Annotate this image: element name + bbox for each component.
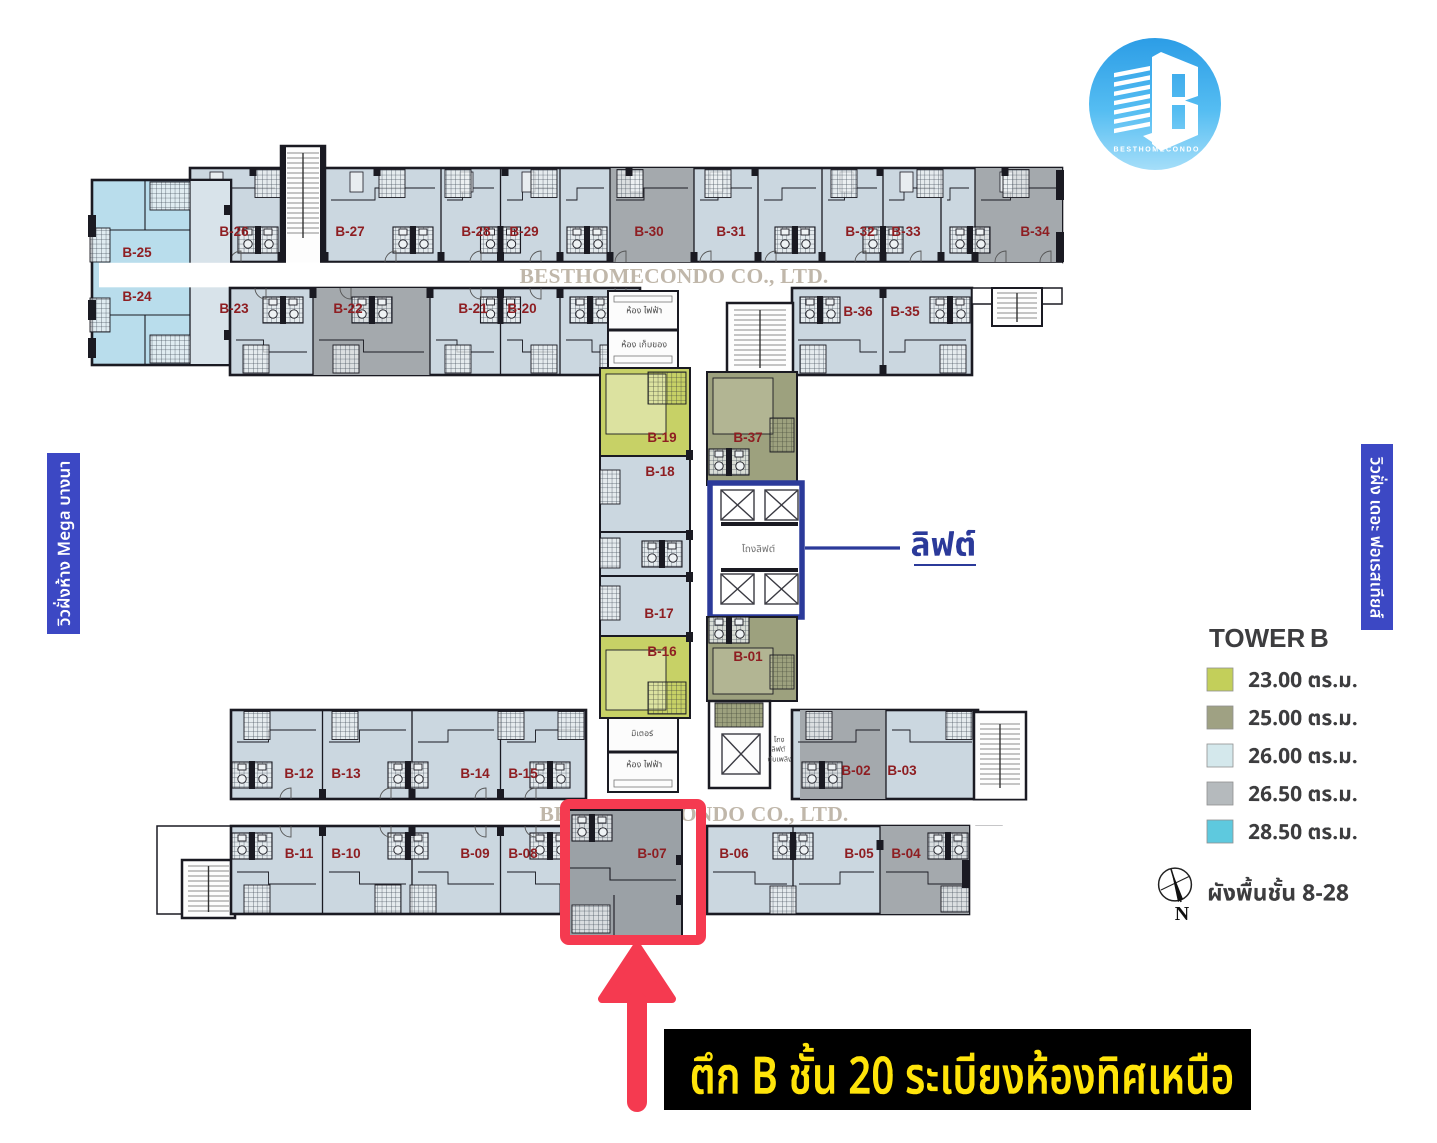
svg-text:B-31: B-31 [716, 224, 746, 239]
svg-text:B-36: B-36 [843, 304, 873, 319]
svg-text:B-23: B-23 [219, 301, 249, 316]
svg-text:B-37: B-37 [733, 430, 762, 445]
svg-text:B-12: B-12 [284, 766, 313, 781]
svg-text:B-03: B-03 [887, 763, 917, 778]
svg-text:B-25: B-25 [122, 245, 152, 260]
svg-text:B-08: B-08 [508, 846, 538, 861]
svg-text:B-34: B-34 [1020, 224, 1050, 239]
svg-text:B-32: B-32 [845, 224, 874, 239]
svg-text:B-01: B-01 [733, 649, 763, 664]
svg-text:B-13: B-13 [331, 766, 361, 781]
svg-text:B-04: B-04 [891, 846, 921, 861]
svg-text:B-30: B-30 [634, 224, 663, 239]
svg-text:B-24: B-24 [122, 289, 152, 304]
svg-text:B-11: B-11 [285, 846, 314, 861]
svg-text:B-15: B-15 [508, 766, 538, 781]
svg-text:B-27: B-27 [335, 224, 364, 239]
svg-text:B-28: B-28 [461, 224, 491, 239]
svg-text:B-06: B-06 [719, 846, 749, 861]
svg-text:B-20: B-20 [507, 301, 536, 316]
svg-text:B-07: B-07 [637, 846, 666, 861]
svg-text:N: N [1175, 903, 1190, 925]
svg-text:B-10: B-10 [331, 846, 360, 861]
svg-text:B-21: B-21 [458, 301, 488, 316]
svg-text:B-35: B-35 [890, 304, 920, 319]
svg-text:B: B [1310, 623, 1329, 653]
svg-text:BESTHOMECONDO CO., LTD.: BESTHOMECONDO CO., LTD. [519, 264, 828, 288]
svg-text:B-16: B-16 [647, 644, 677, 659]
svg-text:B-29: B-29 [509, 224, 538, 239]
svg-text:B-02: B-02 [841, 763, 870, 778]
svg-text:B-26: B-26 [219, 224, 249, 239]
svg-text:TOWER: TOWER [1209, 623, 1306, 653]
svg-text:B-14: B-14 [460, 766, 490, 781]
svg-text:B-05: B-05 [844, 846, 874, 861]
svg-text:B-09: B-09 [460, 846, 489, 861]
svg-text:B-18: B-18 [645, 464, 675, 479]
svg-text:BESTHOMECONDO: BESTHOMECONDO [1114, 147, 1200, 154]
svg-text:B-19: B-19 [647, 430, 676, 445]
svg-text:B-22: B-22 [333, 301, 362, 316]
svg-text:B-33: B-33 [891, 224, 921, 239]
svg-text:B-17: B-17 [644, 606, 673, 621]
